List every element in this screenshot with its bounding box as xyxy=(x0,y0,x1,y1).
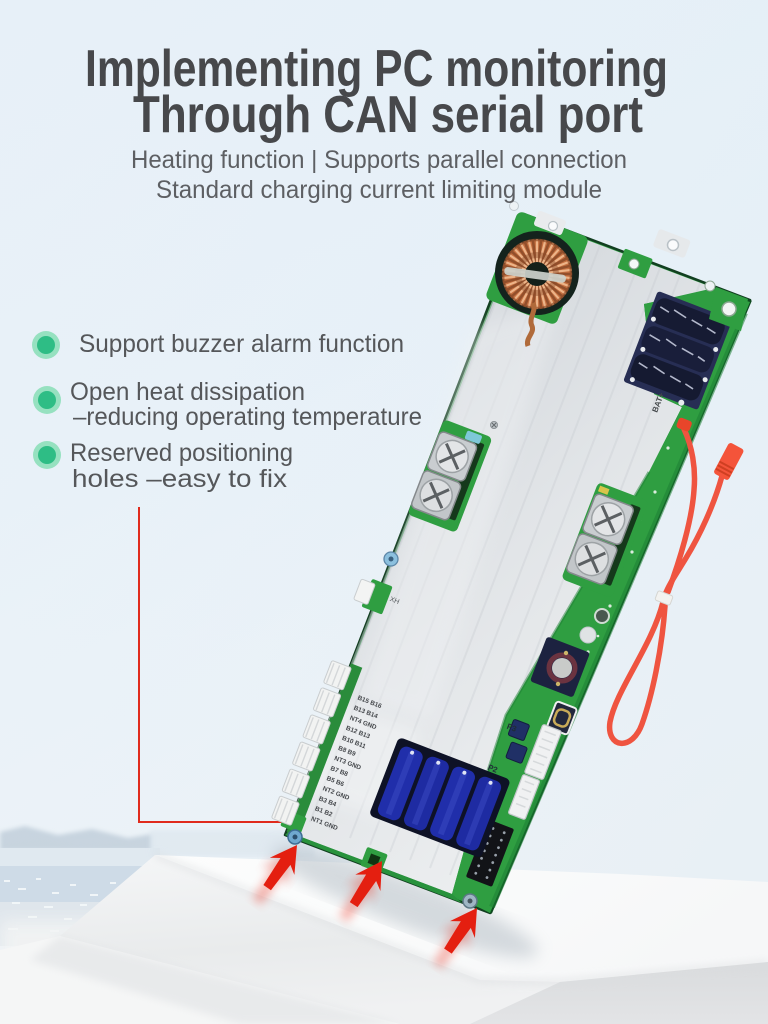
svg-text:Reserved positioning: Reserved positioning xyxy=(70,439,293,467)
svg-text:Open heat dissipation: Open heat dissipation xyxy=(70,378,305,406)
svg-text:holes –easy to fix: holes –easy to fix xyxy=(72,465,288,493)
svg-text:Support buzzer alarm function: Support buzzer alarm function xyxy=(79,330,404,358)
svg-text:Standard charging current limi: Standard charging current limiting modul… xyxy=(156,176,602,204)
svg-text:Heating function | Supports pa: Heating function | Supports parallel con… xyxy=(131,146,627,174)
svg-text:–reducing operating temperatur: –reducing operating temperature xyxy=(73,403,422,431)
svg-text:Through CAN serial port: Through CAN serial port xyxy=(133,86,643,144)
